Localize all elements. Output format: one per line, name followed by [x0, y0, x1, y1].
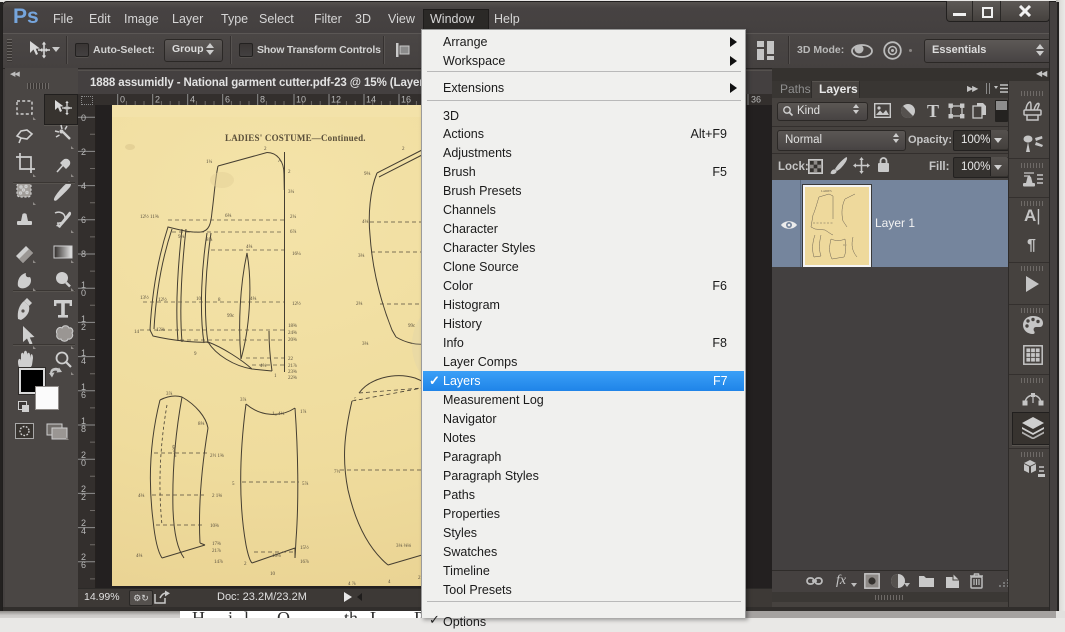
- svg-text:8: 8: [260, 95, 265, 105]
- svg-text:10: 10: [296, 95, 306, 105]
- svg-text:7½: 7½: [334, 470, 341, 475]
- svg-text:0: 0: [81, 113, 86, 123]
- svg-text:3⅞: 3⅞: [166, 392, 173, 397]
- svg-text:16: 16: [401, 95, 411, 105]
- svg-text:4: 4: [81, 181, 86, 191]
- svg-text:13½: 13½: [140, 296, 149, 301]
- svg-text:5⅞: 5⅞: [302, 482, 309, 487]
- svg-text:22: 22: [288, 357, 294, 362]
- svg-text:17⅜: 17⅜: [212, 542, 221, 547]
- svg-text:6⅝: 6⅝: [225, 214, 232, 219]
- svg-text:8⅝: 8⅝: [206, 238, 213, 243]
- svg-text:16⅞: 16⅞: [300, 560, 309, 565]
- svg-text:8: 8: [81, 249, 86, 259]
- svg-text:12½: 12½: [158, 298, 167, 303]
- svg-text:14: 14: [134, 330, 140, 335]
- svg-text:3¼: 3¼: [288, 190, 295, 195]
- svg-text:23⅝: 23⅝: [288, 370, 297, 375]
- svg-text:10: 10: [270, 572, 276, 577]
- svg-text:4⅝: 4⅝: [246, 245, 253, 250]
- svg-text:4⅜: 4⅜: [136, 554, 143, 559]
- svg-text:16¼: 16¼: [292, 252, 301, 257]
- svg-text:21⅞: 21⅞: [288, 364, 297, 369]
- svg-text:36: 36: [751, 95, 761, 105]
- svg-text:4: 4: [81, 526, 86, 536]
- svg-text:22⅝: 22⅝: [288, 376, 297, 381]
- svg-text:0: 0: [81, 458, 86, 468]
- svg-text:A: A: [278, 159, 282, 164]
- svg-text:4 ⅞: 4 ⅞: [348, 582, 356, 586]
- svg-text:3⅛ ⅛⅛: 3⅛ ⅛⅛: [396, 544, 411, 549]
- svg-text:2½ 1⅝: 2½ 1⅝: [210, 454, 224, 459]
- svg-text:2: 2: [81, 147, 86, 157]
- svg-text:4⅝: 4⅝: [260, 364, 267, 369]
- svg-text:12½: 12½: [292, 302, 301, 307]
- svg-text:2: 2: [81, 322, 86, 332]
- svg-text:4⅜: 4⅜: [138, 494, 145, 499]
- svg-text:4⅝: 4⅝: [250, 297, 257, 302]
- svg-text:14: 14: [366, 95, 376, 105]
- svg-text:21⅞: 21⅞: [212, 549, 221, 554]
- svg-text:6⅞: 6⅞: [290, 230, 297, 235]
- svg-text:99c: 99c: [227, 314, 235, 319]
- svg-text:12: 12: [331, 95, 341, 105]
- svg-text:2¼: 2¼: [290, 215, 297, 220]
- svg-text:3⅞: 3⅞: [240, 398, 247, 403]
- svg-text:10: 10: [196, 297, 202, 302]
- svg-text:6: 6: [81, 390, 86, 400]
- svg-text:4⅜: 4⅜: [362, 220, 369, 225]
- svg-text:12½ 11⅝: 12½ 11⅝: [140, 215, 159, 220]
- svg-text:10⅜: 10⅜: [210, 524, 219, 529]
- svg-text:9⅜: 9⅜: [364, 172, 371, 177]
- svg-text:1„ 4⅛: 1„ 4⅛: [272, 412, 284, 417]
- svg-text:3⅜: 3⅜: [362, 342, 369, 347]
- svg-text:2 1⅝: 2 1⅝: [212, 494, 222, 499]
- svg-text:1⅞: 1⅞: [300, 410, 307, 415]
- svg-text:1¼: 1¼: [206, 160, 213, 165]
- svg-text:6: 6: [81, 560, 86, 570]
- svg-text:2: 2: [81, 492, 86, 502]
- svg-text:9⅛: 9⅛: [178, 235, 185, 240]
- svg-text:3⅜: 3⅜: [358, 254, 365, 259]
- svg-text:4: 4: [81, 356, 86, 366]
- svg-text:LADIES' COSTUME—Continued.: LADIES' COSTUME—Continued.: [225, 133, 366, 143]
- svg-text:14⅞: 14⅞: [214, 560, 223, 565]
- svg-text:20⅝: 20⅝: [288, 338, 297, 343]
- svg-text:6: 6: [81, 215, 86, 225]
- svg-text:8⅝: 8⅝: [198, 422, 205, 427]
- svg-text:8: 8: [81, 424, 86, 434]
- svg-text:4: 4: [190, 95, 195, 105]
- svg-text:12⅜: 12⅜: [156, 328, 165, 333]
- svg-text:LADIES: LADIES: [821, 189, 832, 193]
- svg-text:0: 0: [120, 95, 125, 105]
- svg-text:6: 6: [225, 95, 230, 105]
- svg-text:10⅛: 10⅛: [272, 554, 281, 559]
- svg-text:2⅜: 2⅜: [356, 302, 363, 307]
- svg-text:15½: 15½: [300, 546, 309, 551]
- svg-text:0: 0: [81, 288, 86, 298]
- svg-text:2: 2: [155, 95, 160, 105]
- svg-text:24⅝: 24⅝: [288, 331, 297, 336]
- svg-text:18⅝: 18⅝: [288, 324, 297, 329]
